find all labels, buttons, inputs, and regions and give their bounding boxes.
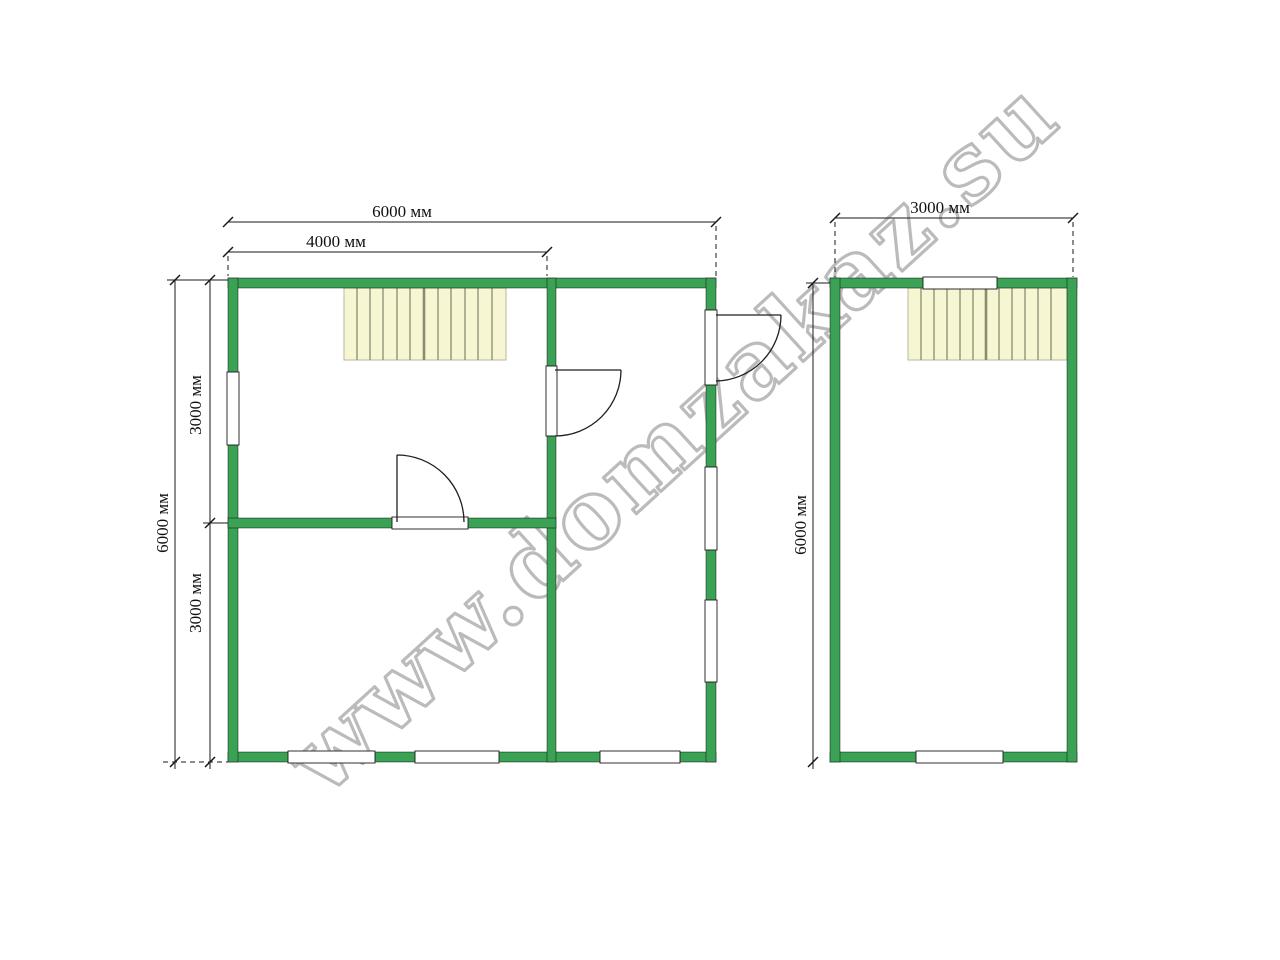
label-left-plan-height-lower: 3000 мм <box>186 573 205 633</box>
watermark-text: www.domzakaz.su <box>266 58 1081 815</box>
floor-plan-drawing: www.domzakaz.su <box>0 0 1280 960</box>
wall-top <box>228 278 716 288</box>
interior-door-opening-horizontal-wall <box>392 517 468 529</box>
label-left-plan-height-total: 6000 мм <box>153 493 172 553</box>
entrance-door-opening <box>705 310 717 385</box>
wall-left <box>830 278 840 762</box>
window-right-wall-lower <box>705 600 717 682</box>
window-right-wall-upper <box>705 467 717 550</box>
label-right-plan-width: 3000 мм <box>910 198 970 217</box>
label-left-plan-height-upper: 3000 мм <box>186 375 205 435</box>
label-left-plan-width-total: 6000 мм <box>372 202 432 221</box>
wall-right <box>1067 278 1077 762</box>
interior-door-opening-vertical-wall <box>546 366 557 436</box>
window-bottom-wall-right <box>600 751 680 763</box>
window-bottom-wall-middle <box>415 751 499 763</box>
label-left-plan-width-partial: 4000 мм <box>306 232 366 251</box>
window-bottom-wall-left <box>288 751 375 763</box>
door-swing-room-divider <box>397 455 464 522</box>
window-top-wall <box>923 277 997 289</box>
right-floor-plan <box>830 277 1077 763</box>
stairs-outline <box>908 288 1067 360</box>
left-plan-staircase <box>344 288 506 360</box>
right-plan-staircase <box>908 288 1067 360</box>
window-bottom-wall <box>916 751 1003 763</box>
floor-plan-svg: www.domzakaz.su <box>0 0 1280 960</box>
label-right-plan-height: 6000 мм <box>791 495 810 555</box>
window-left-wall <box>227 372 239 445</box>
